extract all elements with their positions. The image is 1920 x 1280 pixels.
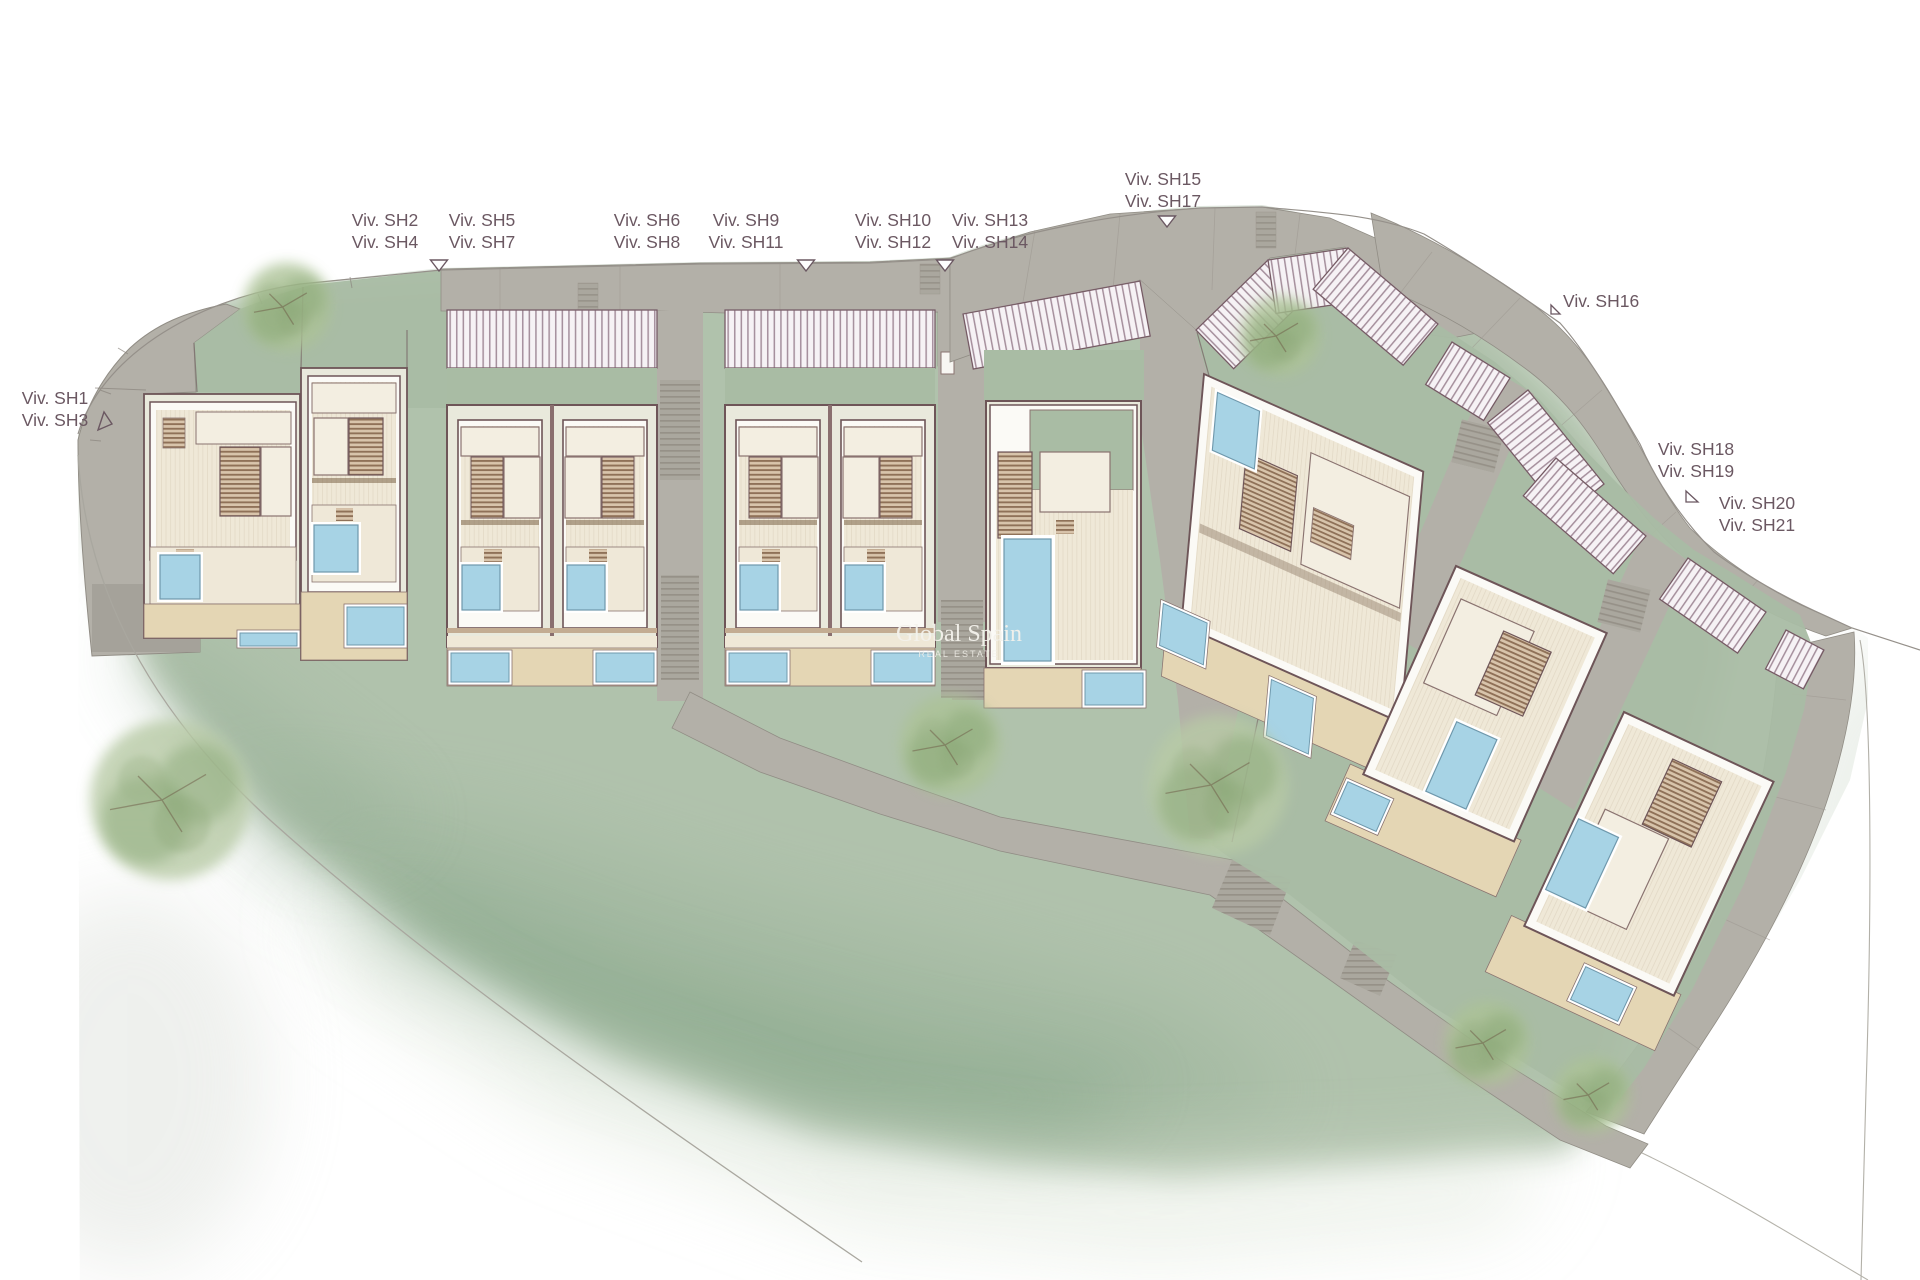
- svg-text:Viv. SH16: Viv. SH16: [1563, 291, 1639, 311]
- svg-text:Viv. SH9: Viv. SH9: [713, 210, 779, 230]
- svg-text:Viv. SH11: Viv. SH11: [709, 232, 784, 252]
- svg-text:Viv. SH12: Viv. SH12: [855, 232, 931, 252]
- svg-text:Viv. SH7: Viv. SH7: [449, 232, 515, 252]
- svg-text:Viv. SH15: Viv. SH15: [1125, 169, 1201, 189]
- svg-text:Viv. SH19: Viv. SH19: [1658, 461, 1734, 481]
- svg-text:Viv. SH14: Viv. SH14: [952, 232, 1028, 252]
- svg-text:Viv. SH17: Viv. SH17: [1125, 191, 1201, 211]
- svg-text:REAL ESTATE: REAL ESTATE: [918, 649, 999, 659]
- svg-text:Viv. SH13: Viv. SH13: [952, 210, 1028, 230]
- svg-text:Global Spain: Global Spain: [896, 621, 1022, 647]
- svg-text:Viv. SH5: Viv. SH5: [449, 210, 515, 230]
- svg-text:Viv. SH8: Viv. SH8: [614, 232, 680, 252]
- svg-text:Viv. SH4: Viv. SH4: [352, 232, 419, 252]
- svg-text:Viv. SH21: Viv. SH21: [1719, 515, 1795, 535]
- svg-text:Viv. SH2: Viv. SH2: [352, 210, 418, 230]
- svg-text:Viv. SH1: Viv. SH1: [22, 388, 88, 408]
- svg-text:Viv. SH20: Viv. SH20: [1719, 493, 1795, 513]
- svg-text:Viv. SH6: Viv. SH6: [614, 210, 680, 230]
- svg-text:Viv. SH3: Viv. SH3: [22, 410, 88, 430]
- svg-text:Viv. SH10: Viv. SH10: [855, 210, 931, 230]
- svg-text:Viv. SH18: Viv. SH18: [1658, 439, 1734, 459]
